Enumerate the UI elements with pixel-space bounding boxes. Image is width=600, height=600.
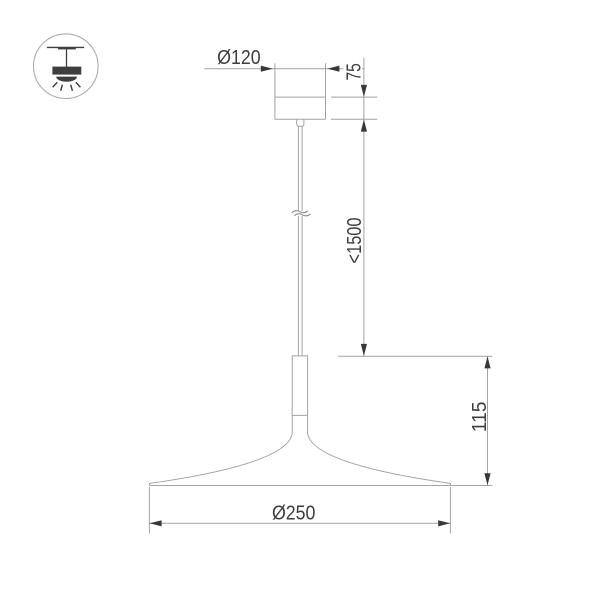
svg-text:115: 115 <box>469 402 491 433</box>
svg-text:75: 75 <box>343 63 365 80</box>
svg-text:Ø250: Ø250 <box>272 502 316 524</box>
svg-text:<1500: <1500 <box>344 218 366 264</box>
svg-text:Ø120: Ø120 <box>217 47 261 69</box>
